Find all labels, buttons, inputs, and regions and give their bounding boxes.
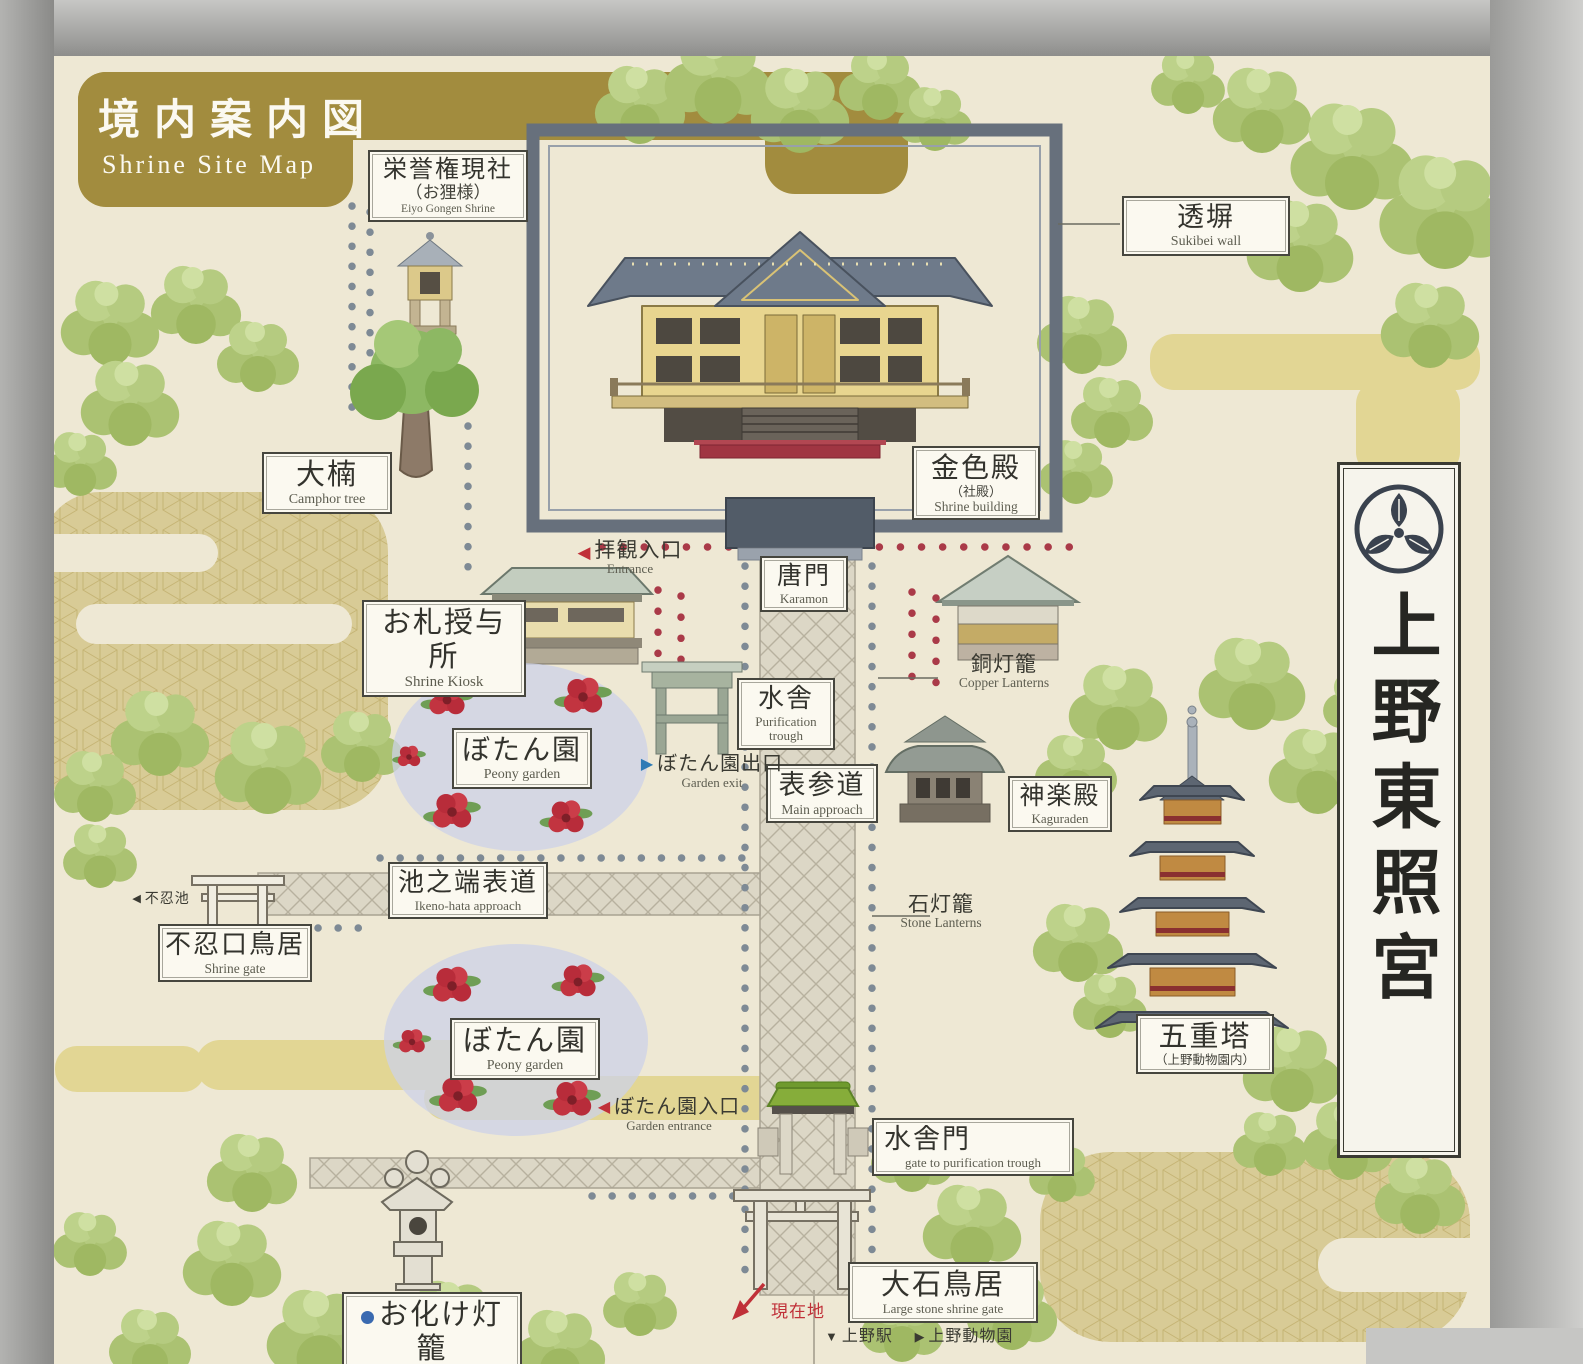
karamon-illustration bbox=[726, 498, 874, 560]
poster-frame-right bbox=[1490, 0, 1583, 1364]
label-golden-hall: 金色殿 （社殿） Shrine building bbox=[912, 446, 1040, 520]
copper-lantern-illustration bbox=[938, 556, 1078, 660]
label-karamon: 唐門 Karamon bbox=[760, 556, 848, 612]
label-camphor: 大楠 Camphor tree bbox=[262, 452, 392, 514]
shrine-name-banner: 上野東照宮 bbox=[1337, 462, 1461, 1158]
entrance-arrow-icon: ◀ bbox=[578, 543, 592, 562]
marker-entrance: ◀拝観入口 Entrance bbox=[560, 538, 700, 576]
garden-exit-arrow-icon: ▶ bbox=[641, 756, 654, 773]
obake-lantern-illustration bbox=[382, 1151, 452, 1290]
label-oishi-torii: 大石鳥居 Large stone shrine gate bbox=[848, 1262, 1038, 1323]
label-obake-toro: お化け灯籠 Obake-toro bbox=[342, 1292, 522, 1364]
shrine-site-map-poster: 境内案内図 Shrine Site Map 栄誉権現社 （お狸様） Eiyo G… bbox=[0, 0, 1583, 1364]
zoo-arrow-icon: ▶ bbox=[915, 1330, 926, 1344]
marker-garden-exit: ▶ぼたん園出口 Garden exit bbox=[636, 753, 788, 790]
garden-entrance-arrow-icon: ◀ bbox=[598, 1099, 611, 1116]
marker-current-location: 現在地 bbox=[758, 1302, 838, 1322]
map-title-en: Shrine Site Map bbox=[102, 150, 316, 180]
kaguraden-illustration bbox=[886, 716, 1004, 822]
eiyo-lantern-illustration bbox=[398, 232, 462, 334]
marker-copper-lanterns: 銅灯籠 Copper Lanterns bbox=[938, 652, 1070, 691]
station-arrow-icon: ▼ bbox=[825, 1330, 839, 1344]
label-ikenohata: 池之端表道 Ikeno-hata approach bbox=[388, 862, 548, 919]
shrine-building-illustration bbox=[588, 232, 992, 458]
poster-frame-bottom-right bbox=[1366, 1328, 1583, 1364]
label-peony-garden-1: ぼたん園 Peony garden bbox=[452, 728, 592, 789]
label-kiosk: お札授与所 Shrine Kiosk bbox=[362, 600, 526, 697]
shrine-name-vertical-text: 上野東照宮 bbox=[1364, 589, 1434, 1016]
label-pagoda: 五重塔 （上野動物園内） bbox=[1136, 1014, 1274, 1074]
obake-marker-icon bbox=[361, 1311, 374, 1324]
poster-frame-top bbox=[0, 0, 1583, 56]
marker-garden-entrance: ◀ぼたん園入口 Garden entrance bbox=[590, 1096, 748, 1133]
map-title-jp: 境内案内図 bbox=[98, 86, 378, 147]
label-suisha-gate: 水舎門 gate to purification trough bbox=[872, 1118, 1074, 1176]
label-peony-garden-2: ぼたん園 Peony garden bbox=[450, 1018, 600, 1080]
trough-illustration bbox=[642, 662, 742, 754]
pond-arrow-icon: ◀ bbox=[132, 893, 142, 905]
label-kaguraden: 神楽殿 Kaguraden bbox=[1008, 776, 1112, 832]
marker-stone-lanterns: 石灯籠 Stone Lanterns bbox=[866, 892, 1016, 931]
poster-frame-left bbox=[0, 0, 54, 1364]
label-shinobazu-torii: 不忍口鳥居 Shrine gate bbox=[158, 924, 312, 982]
label-trough: 水舎 Purification trough bbox=[737, 678, 835, 750]
marker-ueno-zoo: ▶上野動物園 bbox=[904, 1328, 1024, 1346]
marker-ueno-station: ▼上野駅 bbox=[816, 1328, 902, 1346]
label-sukibei: 透塀 Sukibei wall bbox=[1122, 196, 1290, 256]
marker-shinobazu-pond: ◀不忍池 bbox=[116, 892, 206, 908]
label-eiyo-gongen: 栄誉権現社 （お狸様） Eiyo Gongen Shrine bbox=[368, 150, 528, 222]
tokugawa-crest-icon bbox=[1351, 481, 1447, 577]
